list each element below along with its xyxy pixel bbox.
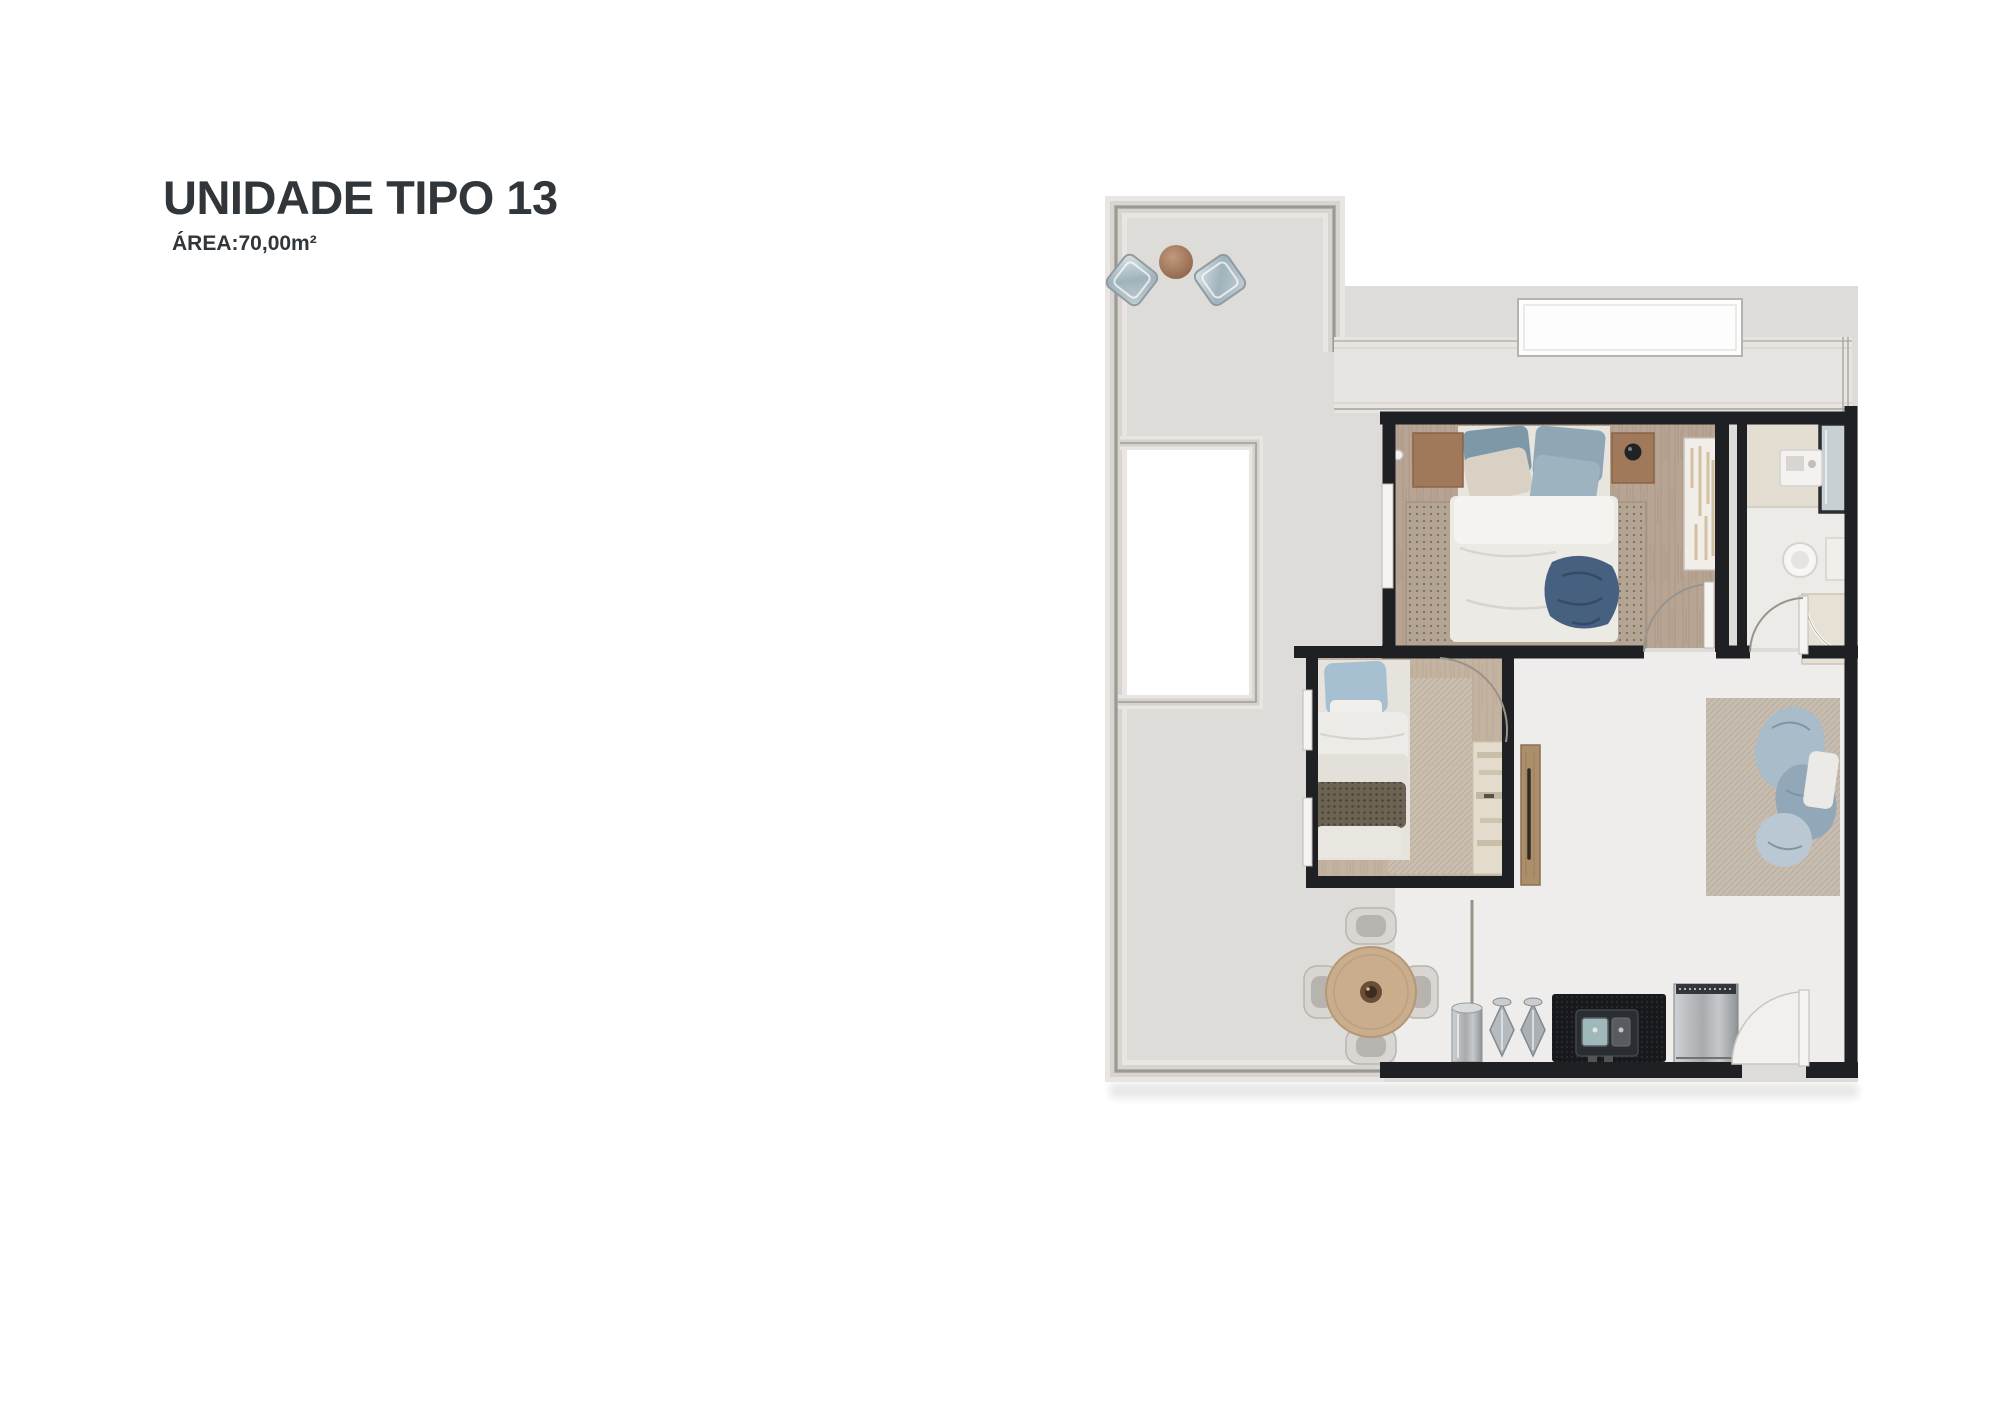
leaning-art: [1684, 438, 1720, 570]
second-window-strip: [1303, 690, 1312, 750]
washer: [1780, 450, 1822, 486]
bath-cabinet: [1826, 538, 1846, 580]
nightstand: [1413, 433, 1463, 487]
mirror-cabinet: [1820, 424, 1846, 512]
master-bedroom: [1390, 424, 1720, 648]
daybed: [1706, 698, 1844, 896]
bathroom: [1747, 424, 1848, 664]
terrace-notch: [1127, 450, 1249, 695]
cooktop: [1552, 994, 1666, 1062]
plan-shadow: [1110, 1083, 1858, 1098]
master-window-strip: [1382, 484, 1393, 588]
second-bedroom: [1312, 658, 1509, 882]
canister: [1452, 1003, 1482, 1062]
second-window-strip: [1303, 798, 1312, 866]
lamp: [1625, 444, 1642, 461]
wooden-door-leaf: [1521, 745, 1540, 885]
floor-plan: [0, 0, 2000, 1414]
second-bed: [1312, 660, 1410, 860]
bathroom-door-leaf: [1799, 596, 1808, 654]
page: UNIDADE TIPO 13 ÁREA:70,00m²: [0, 0, 2000, 1414]
countertop-appliance: [1674, 984, 1738, 1064]
parapet-window: [1518, 299, 1742, 356]
master-bed: [1450, 425, 1619, 642]
denim-jeans: [1544, 556, 1619, 629]
terrace-ball-table: [1159, 245, 1193, 279]
master-door-leaf: [1704, 582, 1714, 648]
entry-door-leaf: [1799, 990, 1809, 1066]
